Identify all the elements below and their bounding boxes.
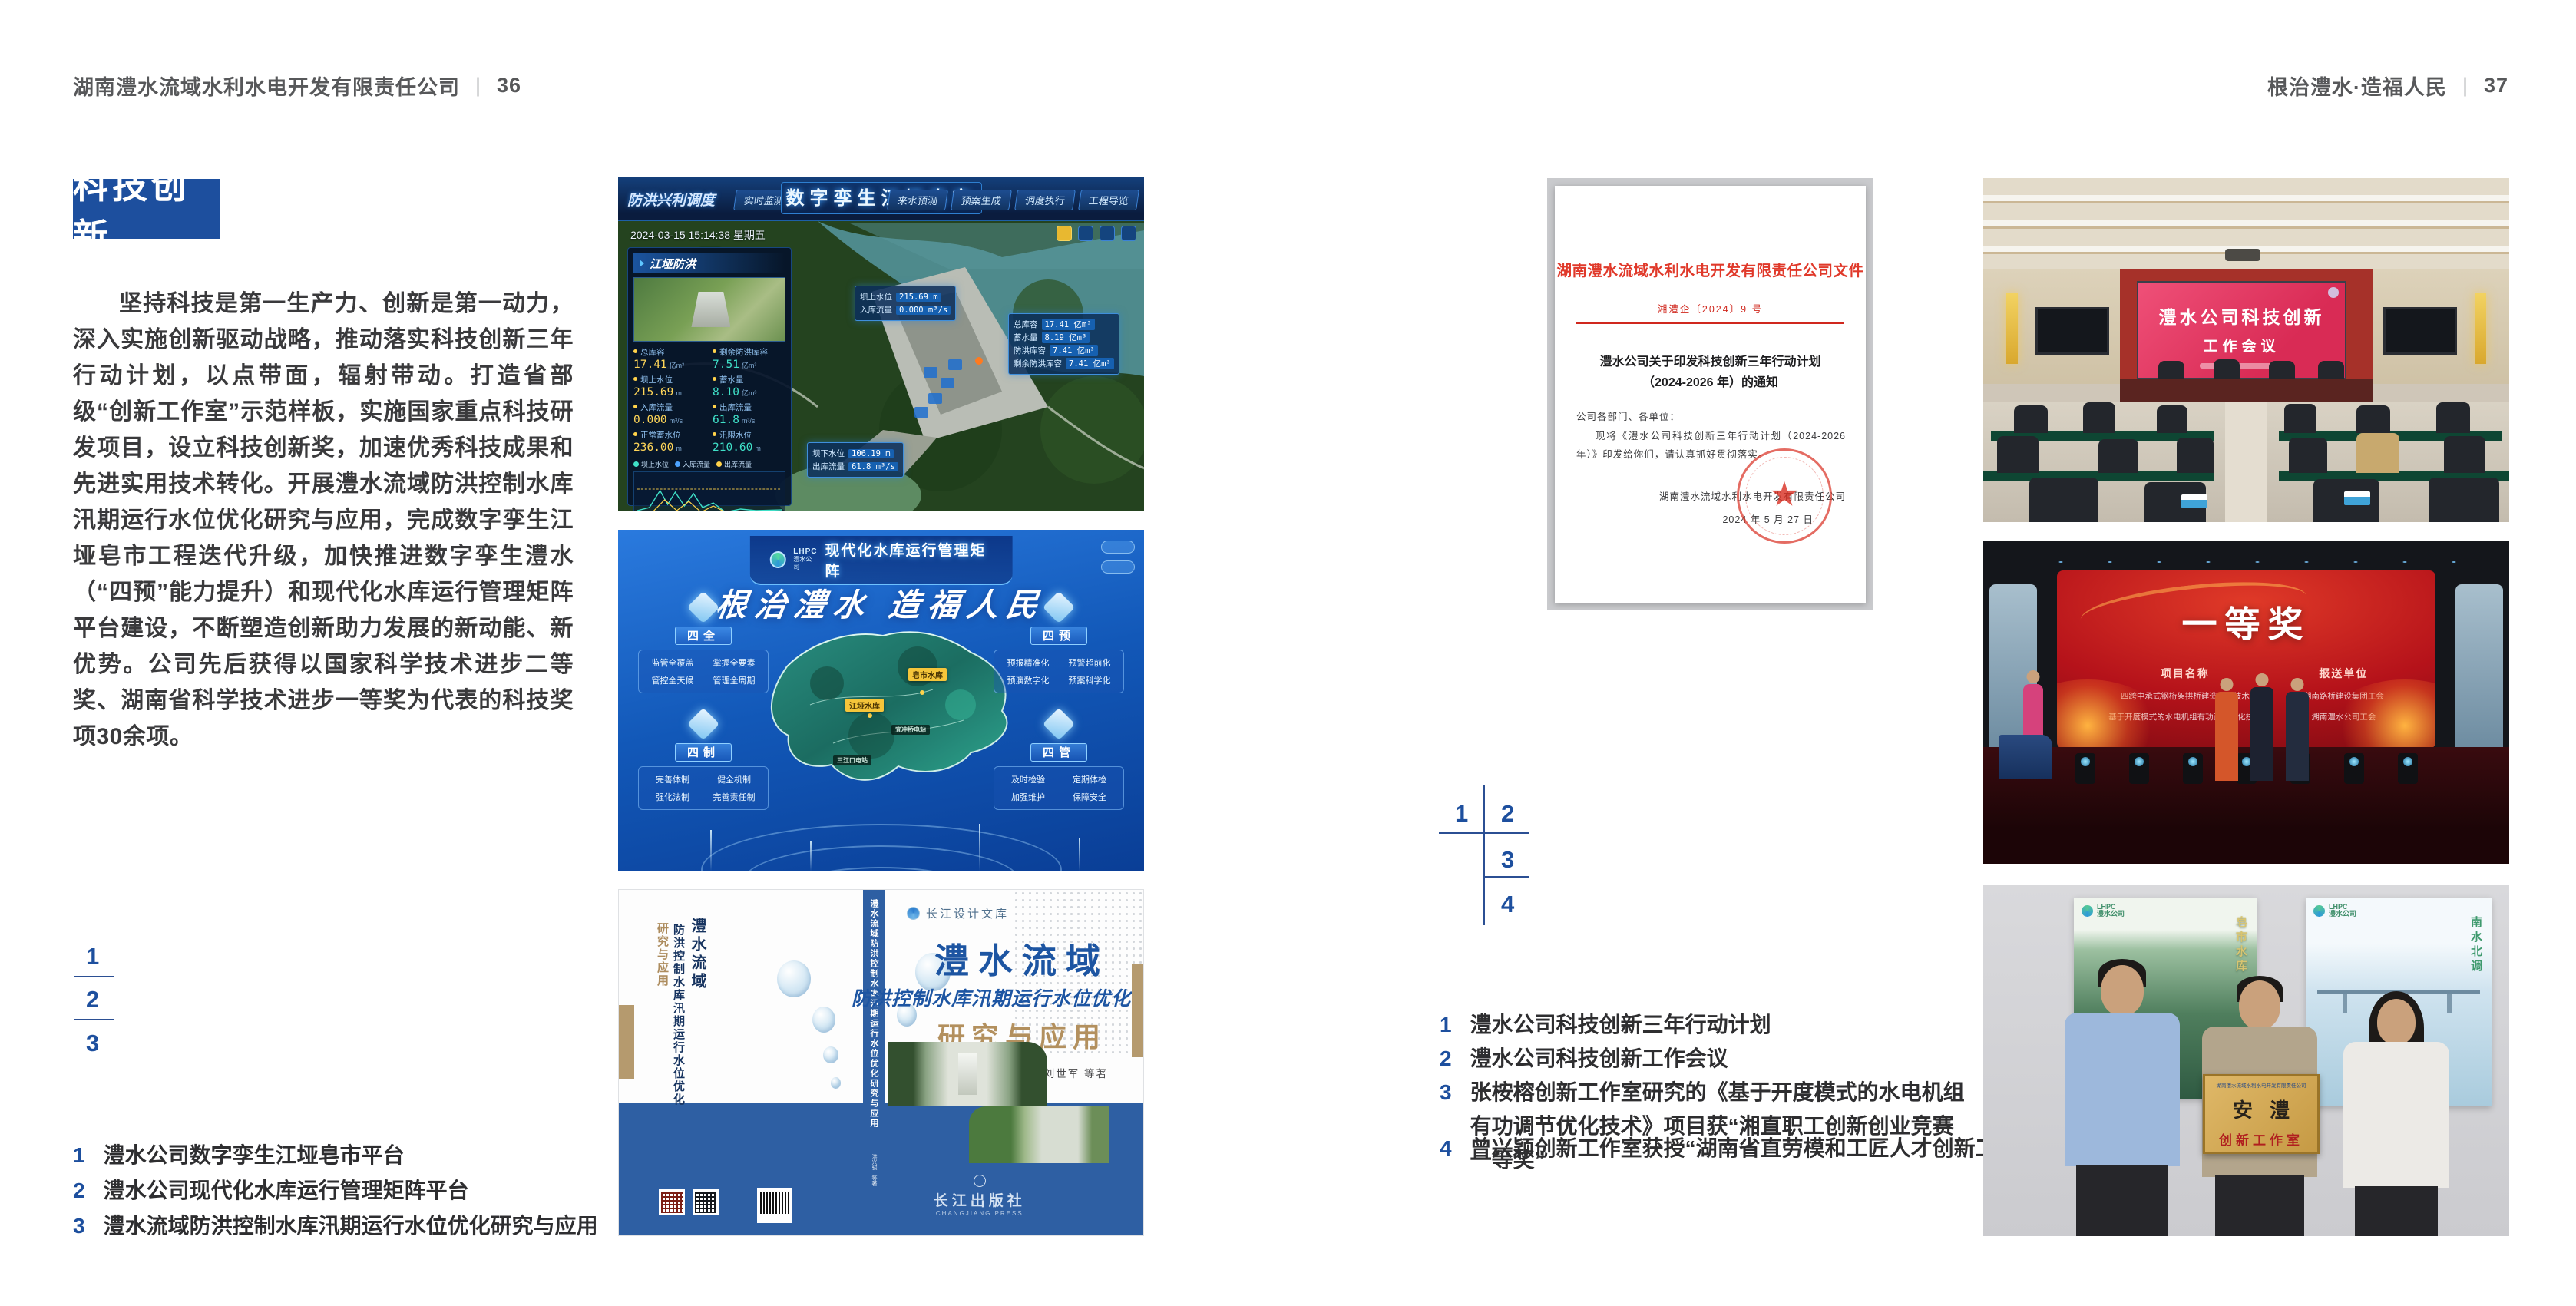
publisher-logo: 长江出版社 CHANGJIANG PRESS [934, 1175, 1026, 1217]
figure-marker-r3: 3 [1501, 846, 1514, 874]
map-tooltip-capacity: 总库容17.41 亿m³ 蓄水量8.19 亿m³ 防洪库容7.41 亿m³ 剩余… [1008, 313, 1119, 375]
basin-map: 皂市水库 江垭水库 宜冲桥电站 三江口电站 [741, 613, 1025, 812]
document-title: 澧水公司关于印发科技创新三年行动计划 （2024-2026 年）的通知 [1555, 352, 1866, 393]
header-slogan: 根治澧水·造福人民 [2267, 71, 2447, 101]
chart-legend: 坝上水位 入库流量 出库流量 [633, 459, 785, 469]
back-cover-tan-block [619, 1005, 634, 1079]
dashboard-toolbar-icons [1057, 226, 1136, 241]
stage-truss-lights [2036, 552, 2457, 572]
rostrum-speaker [2318, 361, 2344, 381]
dashboard-tabs-right: 来水预测 预案生成 调度执行 工程导览 [888, 190, 1138, 210]
document-red-rule [1576, 322, 1844, 324]
attendee [2289, 438, 2327, 473]
map-tooltip-downstream: 坝下水位106.19 m 出库流量61.8 m³/s [807, 442, 904, 478]
front-cover-tan-block [1132, 964, 1143, 1057]
caption-left-2: 2 澧水公司现代化水库运行管理矩阵平台 [73, 1175, 469, 1206]
map-label-yichongqiao: 宜冲桥电站 [891, 725, 930, 735]
figure-marker-3: 3 [86, 1030, 99, 1057]
rostrum-speaker [2158, 361, 2184, 381]
attendee [1997, 436, 2039, 473]
header-company: 湖南澧水流域水利水电开发有限责任公司 [73, 71, 460, 101]
poster-right-caption: 南水北调 [2468, 916, 2484, 974]
magazine-spread: 湖南澧水流域水利水电开发有限责任公司 | 36 根治澧水·造福人民 | 37 科… [0, 0, 2576, 1306]
page-number-left: 36 [497, 74, 521, 98]
photo-studio-plaque: LHPC 澧水公司 皂市水库 LHPC 澧水公司 南水北调 [1983, 885, 2509, 1236]
photo-innovation-meeting: 澧水公司科技创新 工作会议 [1983, 178, 2509, 522]
map-label-sanjiangkou: 三江口电站 [833, 755, 871, 765]
legend-inflow: 入库流量 [675, 459, 710, 469]
photo-award-ceremony: 一等奖 项目名称 四跨中承式钢桁架拱桥建造创新技术 基于开度模式的水电机组有功调… [1983, 541, 2509, 864]
water-bubble [777, 960, 811, 997]
book-title: 澧水流域 [934, 933, 1109, 983]
center-aisle [2225, 402, 2267, 522]
caption-text: 澧水流域防洪控制水库汛期运行水位优化研究与应用 [104, 1211, 598, 1242]
figure-marker-r4: 4 [1501, 891, 1514, 918]
stat-total-capacity: 总库容17.41亿m³ [633, 346, 706, 372]
matrix-group-siguan: 四管 及时检验 定期体检 加强维护 保障安全 [994, 713, 1124, 810]
lhpc-logo-icon [2082, 905, 2093, 917]
figure-marker-1: 1 [86, 943, 99, 970]
caption-right-2: 2 澧水公司科技创新工作会议 [1440, 1043, 1728, 1074]
caption-left-3: 3 澧水流域防洪控制水库汛期运行水位优化研究与应用 [73, 1211, 598, 1242]
attendee [2356, 405, 2390, 433]
screen-title-line2: 工作会议 [2138, 335, 2345, 355]
poster-logo: LHPC 澧水公司 [2313, 904, 2356, 918]
dam-shape [958, 1053, 977, 1095]
plaque-org-line: 湖南澧水流域水利水电开发有限责任公司 [2205, 1081, 2317, 1089]
water-bubble [812, 1007, 835, 1033]
dashboard-left-panel: 江垭防洪 总库容17.41亿m³ 剩余防洪库容7.51亿m³ 坝上水位215.6… [627, 247, 792, 506]
tab-plan-generation[interactable]: 预案生成 [951, 190, 1012, 210]
header-left: 湖南澧水流域水利水电开发有限责任公司 | 36 [73, 71, 521, 101]
power-station-photo [969, 1106, 1109, 1163]
qr-code [659, 1189, 685, 1215]
body-paragraph: 坚持科技是第一生产力、创新是第一动力，深入实施创新驱动战略，推动落实科技创新三年… [73, 286, 574, 755]
lhpc-logo-icon [2313, 905, 2325, 917]
figure-matrix-platform: LHPC 澧水公司 现代化水库运行管理矩阵 根治澧水 造福人民 [618, 530, 1144, 871]
header-right: 根治澧水·造福人民 | 37 [2267, 71, 2508, 101]
layers-icon[interactable] [1078, 226, 1093, 241]
stat-flood-limit-level: 汛限水位210.60m [713, 429, 785, 455]
caption-right-4: 4 曾兴颖创新工作室获授“湖南省直劳模和工匠人才创新工作室” [1440, 1133, 2051, 1164]
stat-storage: 蓄水量8.10亿m³ [713, 374, 785, 399]
user-icon[interactable] [1057, 226, 1072, 241]
settings-icon[interactable] [1121, 226, 1136, 241]
innovation-studio-plaque: 湖南澧水流域水利水电开发有限责任公司 安澧 创新工作室 [2203, 1074, 2320, 1154]
figure-marker-divider [74, 976, 114, 977]
section-title-badge: 科技创新 [73, 179, 220, 239]
level-flow-chart [633, 471, 785, 511]
book-subtitle: 防洪控制水库汛期运行水位优化 [852, 984, 1131, 1011]
figure-marker-2: 2 [86, 986, 99, 1013]
maintenance-icon [1043, 708, 1075, 740]
locate-icon[interactable] [1100, 226, 1115, 241]
screen-logo-icon [2328, 287, 2339, 298]
institution-icon [687, 708, 719, 740]
caption-right-1: 1 澧水公司科技创新三年行动计划 [1440, 1010, 1771, 1040]
mini-dam-shape [691, 292, 730, 327]
figure-book-cover: 澧水流域 防洪控制水库汛期运行水位优化 研究与应用 澧水流域防洪控制水库汛期运行… [618, 889, 1144, 1236]
page-number-right: 37 [2484, 74, 2508, 98]
awardee-dark-suit [2286, 692, 2309, 781]
host-podium [1999, 735, 2052, 779]
changjiang-design-logo-icon [907, 907, 920, 920]
lhpc-logo-text: LHPC 澧水公司 [2329, 904, 2356, 918]
plaque-sub-text: 创新工作室 [2205, 1129, 2317, 1149]
qr-code [693, 1189, 719, 1215]
stat-remaining-flood-capacity: 剩余防洪库容7.51亿m³ [713, 346, 785, 372]
figure-marker-divider [74, 1019, 114, 1020]
person-blue-polo [2057, 959, 2187, 1236]
dam-canyon-photo [888, 1042, 1047, 1106]
lhpc-logo-text: LHPC 澧水公司 [2097, 904, 2125, 918]
map-label-jiangya: 江垭水库 [845, 699, 884, 712]
ceiling-fixture [2225, 249, 2260, 261]
lhpc-logo-icon [769, 551, 785, 568]
marker-horizontal-line [1483, 876, 1529, 878]
rostrum-speaker [2269, 361, 2295, 381]
matrix-group-siyu: 四预 预报精准化 预警超前化 预演数字化 预案科学化 [994, 596, 1124, 693]
attendee [2284, 404, 2316, 433]
publisher-mark-icon [974, 1175, 986, 1187]
dam-thumbnail[interactable] [633, 277, 785, 342]
attendee [2014, 405, 2048, 433]
basin-map-shape [741, 613, 1025, 812]
book-spine: 澧水流域防洪控制水库汛期运行水位优化研究与应用 洪兴骏 等著 [863, 890, 885, 1235]
monitor-icon [687, 591, 719, 623]
poster-logo: LHPC 澧水公司 [2082, 904, 2125, 918]
document-salutation: 公司各部门、各单位： [1576, 408, 1680, 423]
matrix-topbar: LHPC 澧水公司 现代化水库运行管理矩阵 [749, 536, 1013, 585]
stat-outflow: 出库流量61.8m³/s [713, 402, 785, 427]
wall-lamp [2006, 293, 2018, 364]
caption-number: 2 [73, 1175, 85, 1206]
poster-left-caption: 皂市水库 [2233, 916, 2249, 974]
rostrum-speaker [2214, 359, 2240, 381]
panel-flood-header: 江垭防洪 [633, 253, 785, 273]
header-separator-right: | [2462, 74, 2469, 98]
dashboard-menu-label: 防洪兴利调度 [627, 189, 715, 210]
marker-horizontal-line [1439, 832, 1529, 834]
caption-text: 澧水公司现代化水库运行管理矩阵平台 [104, 1175, 469, 1206]
legend-upstream-level: 坝上水位 [633, 459, 669, 469]
tab-project-tour[interactable]: 工程导览 [1078, 190, 1139, 210]
flood-stats-grid: 总库容17.41亿m³ 剩余防洪库容7.51亿m³ 坝上水位215.69m 蓄水… [633, 346, 785, 455]
figure-marker-r1: 1 [1455, 800, 1468, 828]
attendee [2098, 439, 2138, 473]
light-pillar [810, 841, 812, 871]
led-screen: 一等奖 项目名称 四跨中承式钢桁架拱桥建造创新技术 基于开度模式的水电机组有功调… [2057, 570, 2435, 749]
legend-outflow: 出库流量 [716, 459, 752, 469]
presenter-dark-suit [2250, 687, 2273, 781]
back-cover-titles: 澧水流域 防洪控制水库汛期运行水位优化 研究与应用 [654, 918, 709, 1148]
menu-button[interactable] [1101, 560, 1135, 574]
attendee [2436, 402, 2470, 433]
matrix-title: 现代化水库运行管理矩阵 [825, 539, 992, 580]
wall-lamp [2475, 293, 2486, 364]
stat-inflow: 入库流量0.000m³/s [633, 402, 706, 427]
chart-canvas [634, 472, 785, 511]
fullscreen-button[interactable] [1101, 541, 1135, 554]
plaque-main-text: 安澧 [2205, 1095, 2317, 1123]
light-pillar [979, 824, 980, 871]
map-label-zaoshi: 皂市水库 [908, 668, 947, 681]
lhpc-logo-text: LHPC 澧水公司 [793, 548, 817, 571]
isbn-barcode [757, 1188, 792, 1223]
caption-left-1: 1 澧水公司数字孪生江垭皂市平台 [73, 1140, 405, 1171]
caption-text: 澧水公司数字孪生江垭皂市平台 [104, 1140, 405, 1171]
figure-official-document: 湖南澧水流域水利水电开发有限责任公司文件 湘澧企〔2024〕9 号 澧水公司关于… [1547, 178, 1873, 610]
marker-vertical-line [1483, 785, 1485, 925]
seal-star-icon: ★ [1769, 474, 1799, 514]
caption-number: 1 [73, 1140, 85, 1171]
stat-normal-level: 正常蓄水位236.00m [633, 429, 706, 455]
figure-digital-twin-dashboard: 防洪兴利调度 实时监测 洪水预报 防洪预警 数字孪生江垭皂市 来水预测 预案生成… [618, 177, 1144, 511]
person-white-tee [2335, 991, 2458, 1236]
attendee-front [2029, 478, 2098, 522]
header-separator: | [475, 74, 481, 98]
panel-flood-title: 江垭防洪 [650, 256, 696, 272]
series-logo: 长江设计文库 [907, 905, 1009, 921]
screen-title-line1: 澧水公司科技创新 [2138, 303, 2345, 329]
document-number: 湘澧企〔2024〕9 号 [1555, 301, 1866, 316]
attendee [2157, 405, 2187, 433]
water-bubble [831, 1077, 841, 1089]
water-bubble [823, 1046, 838, 1063]
map-tooltip-upstream: 坝上水位215.69 m 入库流量0.000 m³/s [855, 286, 956, 321]
light-pillar [1079, 838, 1080, 871]
matrix-group-siquan: 四全 监管全覆盖 掌握全要素 管控全天候 管理全周期 [638, 596, 769, 693]
water-bottle [2344, 491, 2370, 505]
tissue-box [2181, 494, 2207, 508]
stat-upstream-level: 坝上水位215.69m [633, 374, 706, 399]
attendee [2083, 402, 2115, 433]
wall-tv [2383, 307, 2457, 355]
attendee [2444, 436, 2485, 473]
document-red-header: 湖南澧水流域水利水电开发有限责任公司文件 [1555, 258, 1866, 280]
caption-number: 3 [73, 1211, 85, 1242]
dashboard-datetime: 2024-03-15 15:14:38 星期五 [630, 227, 766, 243]
attendee [2177, 438, 2214, 473]
figure-marker-r2: 2 [1501, 800, 1514, 828]
official-seal: ★ [1737, 448, 1832, 544]
wall-tv [2035, 307, 2109, 355]
rostrum-table [2120, 379, 2373, 402]
forecast-icon [1043, 591, 1075, 623]
panel-header-icon [640, 260, 644, 267]
light-pillar [710, 830, 712, 871]
tab-dispatch-execution[interactable]: 调度执行 [1014, 190, 1076, 210]
attendee-tan-coat [2356, 433, 2399, 473]
awardee-orange-uniform [2215, 692, 2238, 781]
tab-inflow-prediction[interactable]: 来水预测 [887, 190, 948, 210]
document-paper: 湖南澧水流域水利水电开发有限责任公司文件 湘澧企〔2024〕9 号 澧水公司关于… [1555, 186, 1866, 603]
attendee-front [2429, 478, 2499, 522]
matrix-group-sizhi: 四制 完善体制 健全机制 强化法制 完善责任制 [638, 713, 769, 810]
